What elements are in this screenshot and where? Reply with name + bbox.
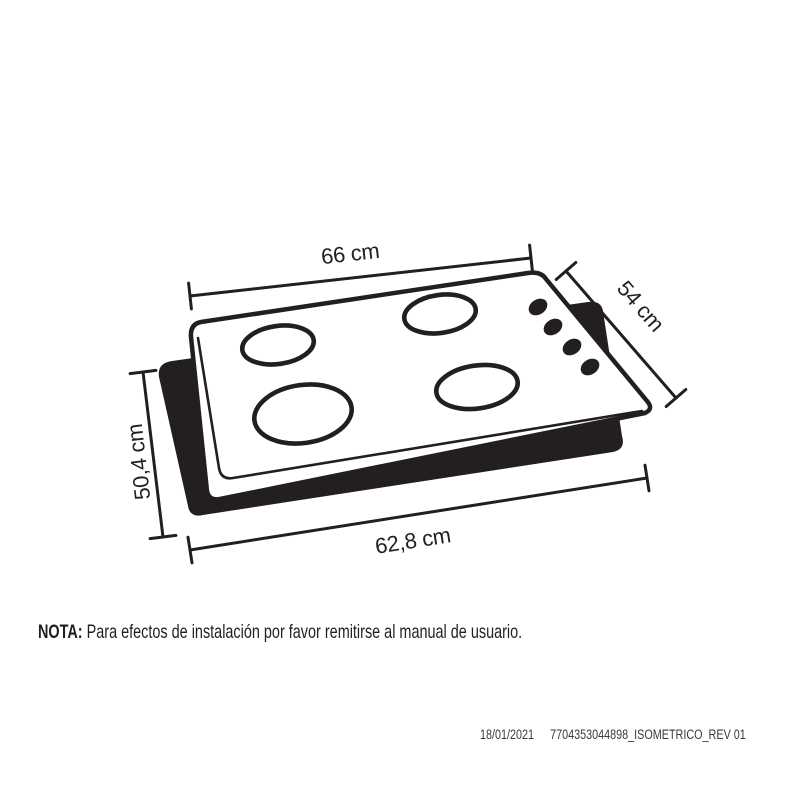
footer-date: 18/01/2021 — [480, 727, 534, 742]
footer-reference: 7704353044898_ISOMETRICO_REV 01 — [550, 727, 746, 742]
cooktop-isometric-diagram: 66 cm 54 cm 50,4 cm 62,8 cm — [0, 0, 800, 800]
document-reference: 18/01/2021 7704353044898_ISOMETRICO_REV … — [480, 727, 746, 742]
dimension-tick — [188, 537, 192, 563]
dimension-tick — [189, 283, 192, 309]
note-label: NOTA: — [38, 621, 83, 643]
dimension-tick — [645, 465, 649, 491]
note-text: Para efectos de instalación por favor re… — [87, 621, 523, 643]
dimension-label-bottom-width: 62,8 cm — [373, 522, 452, 558]
installation-note: NOTA: Para efectos de instalación por fa… — [38, 620, 522, 644]
dimension-tick — [530, 245, 533, 271]
isometric-drawing-page: 66 cm 54 cm 50,4 cm 62,8 cm NOTA: Para e… — [0, 0, 800, 800]
dimension-label-right-depth: 54 cm — [612, 276, 669, 337]
dimension-tick — [150, 535, 176, 538]
dimension-label-top-width: 66 cm — [320, 238, 381, 269]
dimension-tick — [130, 370, 156, 373]
